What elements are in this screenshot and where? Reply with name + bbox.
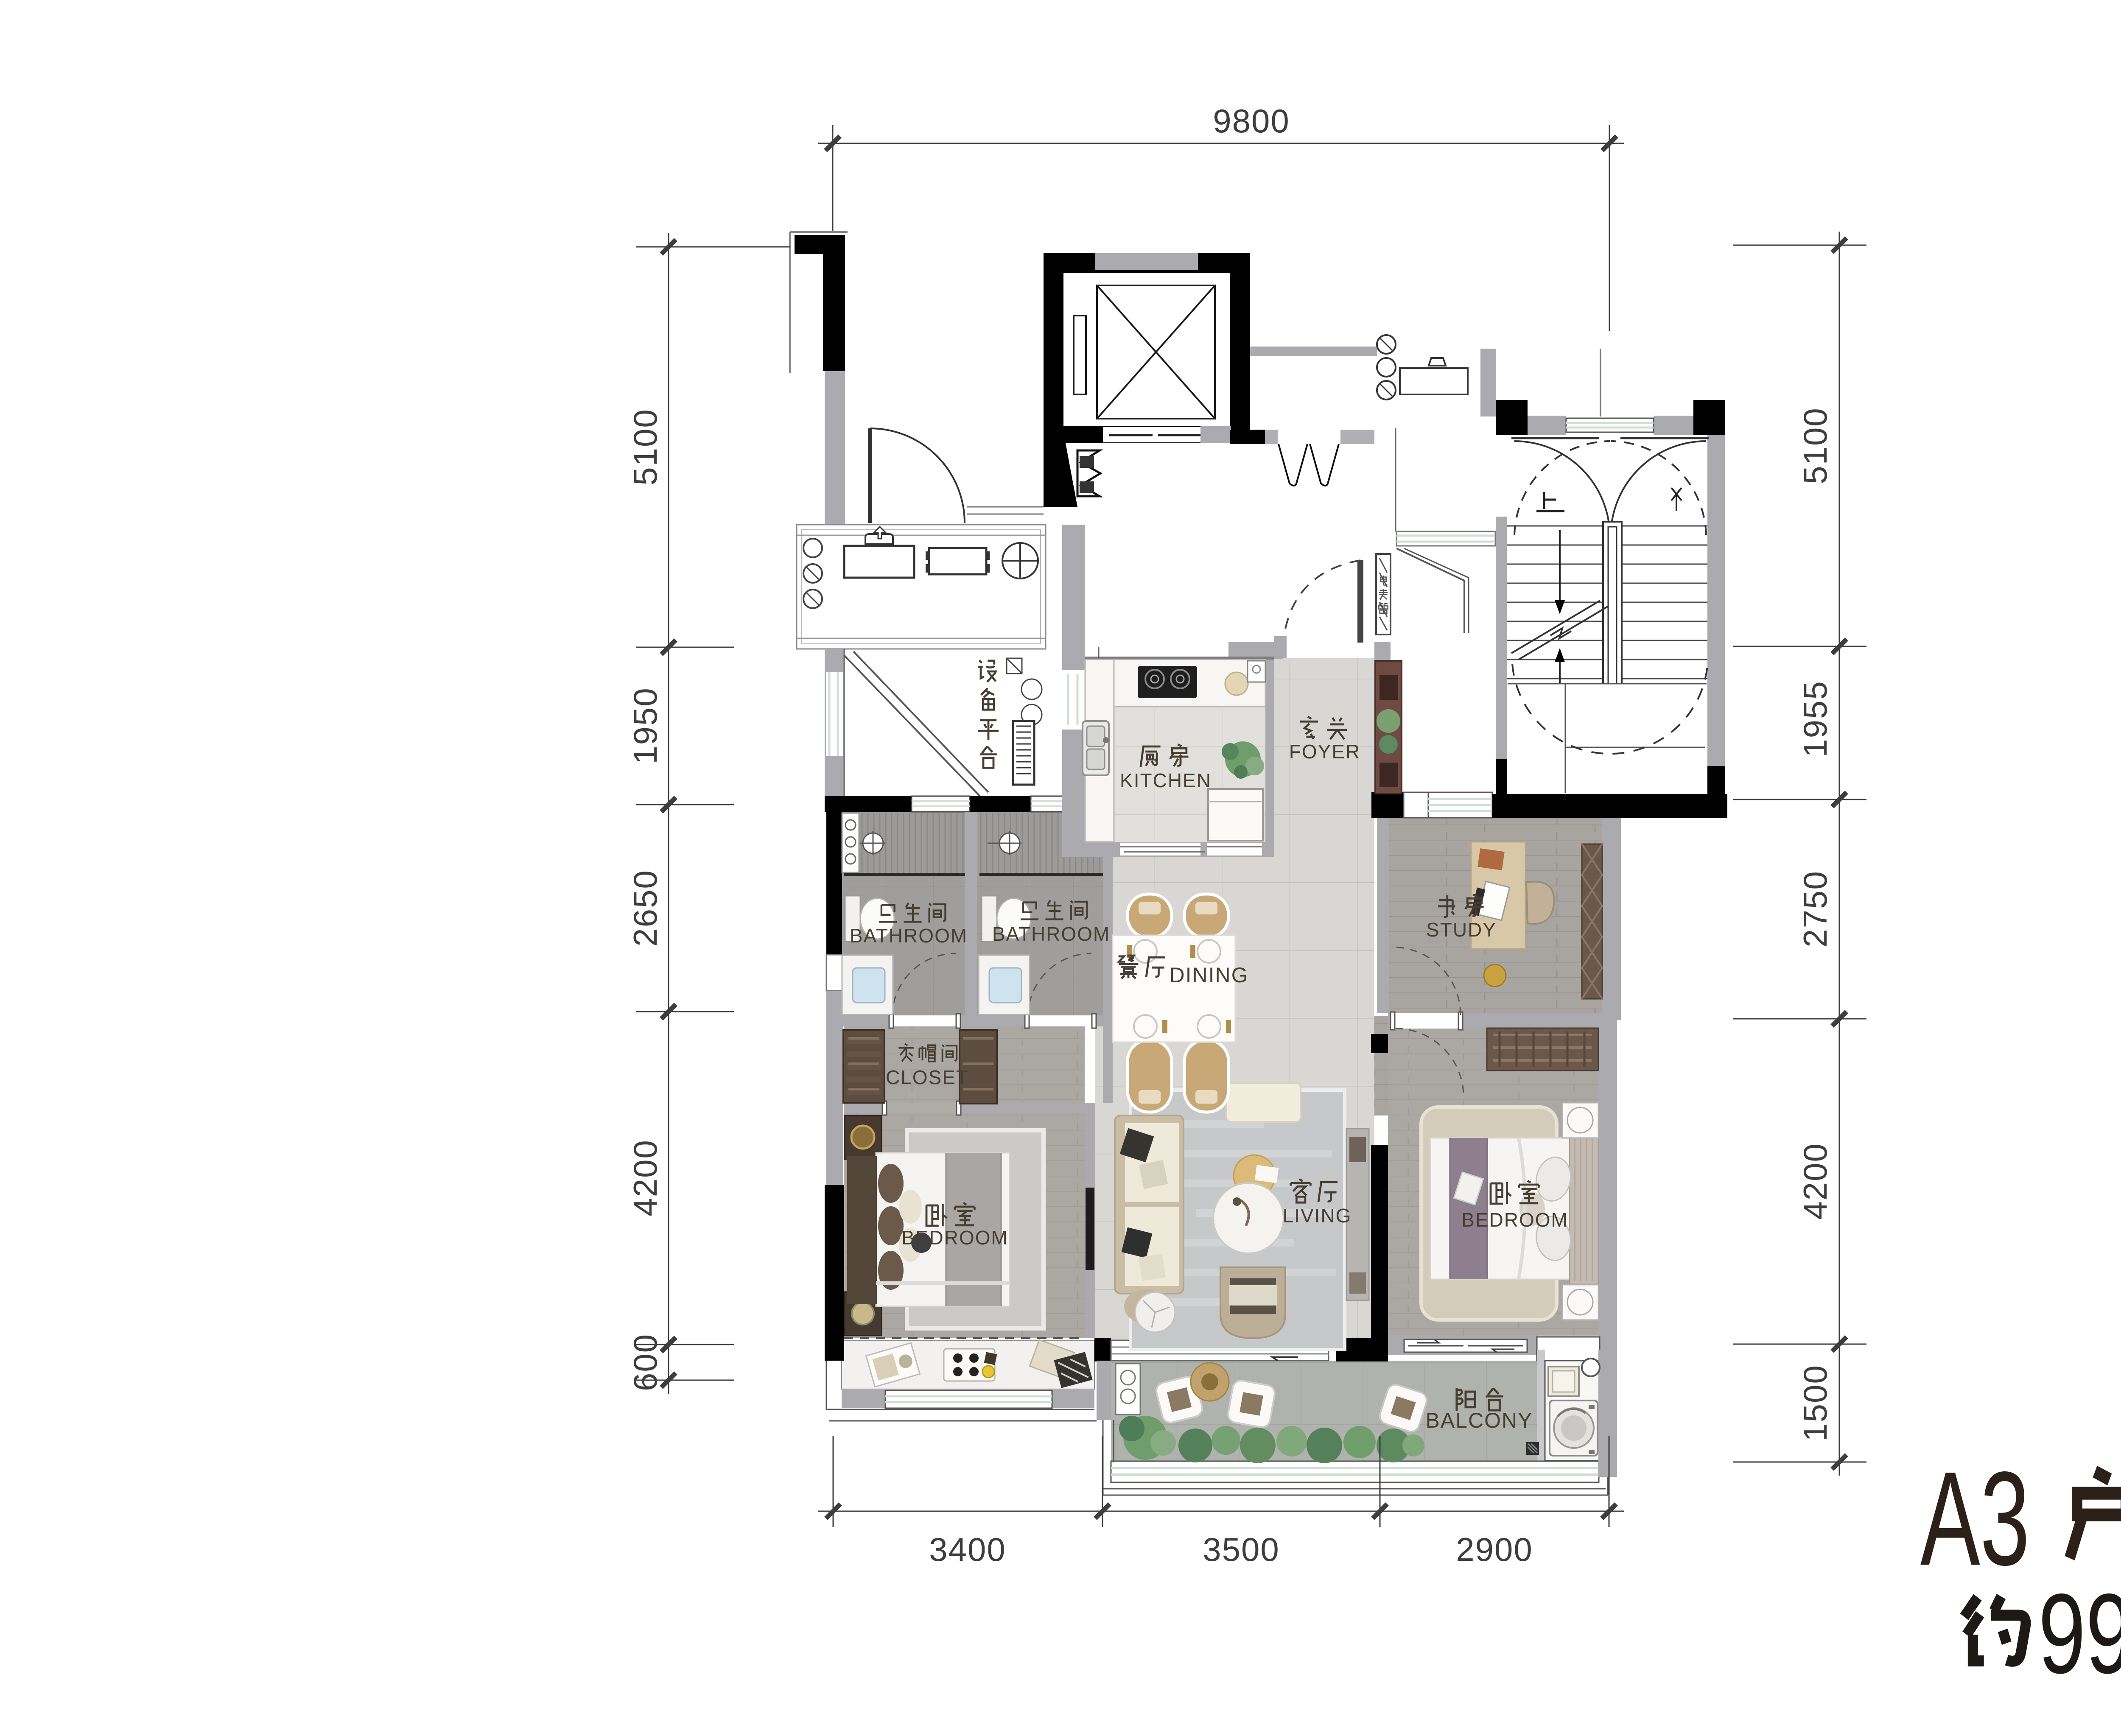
svg-text:3500: 3500 <box>1203 1531 1280 1568</box>
svg-text:9800: 9800 <box>1213 102 1290 140</box>
svg-text:BALCONY: BALCONY <box>1426 1409 1533 1432</box>
svg-text:FOYER: FOYER <box>1289 741 1360 763</box>
svg-text:99: 99 <box>2038 1571 2121 1697</box>
svg-text:KITCHEN: KITCHEN <box>1120 769 1212 791</box>
svg-text:4200: 4200 <box>627 1139 664 1216</box>
svg-text:LIVING: LIVING <box>1283 1205 1352 1227</box>
svg-text:3400: 3400 <box>929 1531 1006 1568</box>
svg-text:CLOSET: CLOSET <box>886 1066 969 1088</box>
svg-text:2900: 2900 <box>1456 1531 1533 1568</box>
svg-text:A3: A3 <box>1920 1444 2030 1593</box>
svg-text:1955: 1955 <box>1796 680 1834 758</box>
svg-text:5100: 5100 <box>627 408 664 486</box>
svg-text:BEDROOM: BEDROOM <box>1461 1209 1568 1231</box>
svg-text:2650: 2650 <box>627 869 664 947</box>
svg-text:BATHROOM: BATHROOM <box>992 923 1110 945</box>
svg-text:BEDROOM: BEDROOM <box>901 1227 1008 1249</box>
svg-text:600: 600 <box>627 1333 664 1391</box>
svg-text:2750: 2750 <box>1796 870 1834 948</box>
svg-text:1950: 1950 <box>627 687 664 764</box>
svg-text:DINING: DINING <box>1170 963 1249 987</box>
svg-text:BATHROOM: BATHROOM <box>850 925 968 947</box>
svg-text:5100: 5100 <box>1796 407 1834 484</box>
svg-text:STUDY: STUDY <box>1426 919 1497 941</box>
svg-text:4200: 4200 <box>1796 1143 1834 1220</box>
svg-text:1500: 1500 <box>1796 1364 1834 1442</box>
